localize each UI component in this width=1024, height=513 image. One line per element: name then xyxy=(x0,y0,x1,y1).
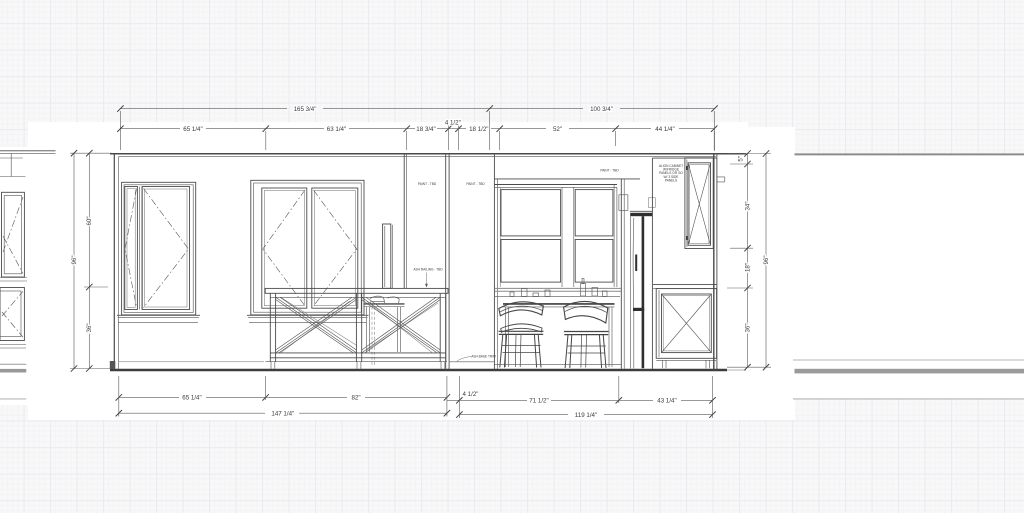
svg-text:119 1/4": 119 1/4" xyxy=(575,412,597,419)
svg-text:36": 36" xyxy=(744,323,751,332)
svg-text:96": 96" xyxy=(763,255,770,264)
svg-text:PAINT - TBD: PAINT - TBD xyxy=(600,169,619,173)
svg-text:18 3/4": 18 3/4" xyxy=(416,126,435,133)
svg-text:PAINT - TBD: PAINT - TBD xyxy=(418,182,437,186)
svg-text:60": 60" xyxy=(86,216,93,225)
svg-text:82": 82" xyxy=(351,395,360,402)
svg-text:65 1/4": 65 1/4" xyxy=(182,395,201,402)
svg-text:43 1/4": 43 1/4" xyxy=(657,398,676,405)
svg-text:71 1/2": 71 1/2" xyxy=(529,398,548,405)
svg-text:147 1/4": 147 1/4" xyxy=(271,410,294,417)
svg-text:4 1/2": 4 1/2" xyxy=(463,391,479,398)
svg-text:18": 18" xyxy=(744,263,751,272)
svg-text:52": 52" xyxy=(553,126,562,133)
svg-text:ASH BASE TRIM: ASH BASE TRIM xyxy=(471,355,496,359)
svg-text:ASH RAILING - TBD: ASH RAILING - TBD xyxy=(413,268,443,272)
svg-text:PANELS: PANELS xyxy=(665,178,677,182)
svg-text:63 1/4": 63 1/4" xyxy=(327,126,346,133)
svg-text:5": 5" xyxy=(738,156,745,162)
svg-text:4 1/2": 4 1/2" xyxy=(445,119,461,126)
svg-text:PAINT - TBD: PAINT - TBD xyxy=(466,182,485,186)
svg-text:100 3/4": 100 3/4" xyxy=(590,106,613,113)
svg-text:44 1/4": 44 1/4" xyxy=(655,126,674,133)
svg-text:18 1/2": 18 1/2" xyxy=(469,126,488,133)
svg-text:36": 36" xyxy=(86,323,93,332)
svg-text:165 3/4": 165 3/4" xyxy=(294,106,317,113)
svg-text:96": 96" xyxy=(71,255,78,264)
svg-text:65 1/4": 65 1/4" xyxy=(183,126,202,133)
svg-text:34": 34" xyxy=(744,201,751,210)
